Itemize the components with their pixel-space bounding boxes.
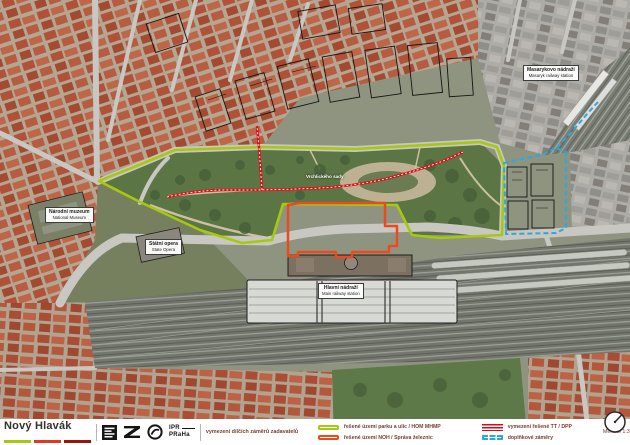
title-bar-darkred (64, 440, 91, 443)
title-bar-red (34, 440, 61, 443)
legend-item-tram: vymezení řešené TT / DPP (482, 424, 603, 431)
legend-item-noh: řešené území NOH / Správa železnic (318, 435, 472, 441)
title-bar-green (4, 440, 31, 443)
sprava-zeleznic-logo (123, 425, 141, 439)
title-color-bars (4, 440, 91, 443)
north-compass-icon (603, 410, 627, 434)
footer-divider (96, 424, 97, 441)
plan-sheet: Národní muzeum National Museum Státní op… (0, 0, 630, 445)
legend: řešené území parku a ulic / HOM MHMP řeš… (318, 424, 603, 441)
ipr-praha-logo: IPR PRaHa (169, 425, 195, 439)
footer-bar: Nový Hlavák (0, 419, 630, 445)
legend-swatch-red-stripes (482, 424, 503, 431)
legend-item-supplementary: doplňkové záměry (482, 435, 603, 441)
ipr-logo-top-text: IPR (169, 425, 180, 432)
map-label-vrchlickeho-sady: Vrchlického sady (306, 174, 344, 179)
map-label-statni-opera: Státní opera State Opera (145, 239, 182, 255)
document-subtitle: vymezení dílčích záměrů zadavatelů (206, 429, 318, 435)
map-label-hlavni-nadrazi: Hlavní nádraží Main railway station (318, 283, 364, 299)
legend-item-park-streets: řešené území parku a ulic / HOM MHMP (318, 424, 472, 431)
ipr-logo-line (182, 428, 195, 429)
map-label-narodni-muzeum: Národní muzeum National Museum (45, 207, 94, 223)
ipr-logo-bottom-text: PRaHa (169, 432, 195, 439)
legend-swatch-blue-dashed (482, 435, 503, 440)
logo-strip: IPR PRaHa (102, 424, 195, 440)
map-label-masarykovo-nadrazi: Masarykovo nádraží Masaryk railway stati… (523, 65, 579, 81)
praha-logo (102, 425, 117, 440)
brand-block: Nový Hlavák (0, 421, 91, 443)
legend-swatch-green-outline (318, 425, 339, 430)
footer-divider (200, 424, 201, 441)
satellite-map: Národní muzeum National Museum Státní op… (0, 0, 630, 445)
dpp-logo (147, 424, 163, 440)
document-title: Nový Hlavák (4, 421, 91, 432)
legend-swatch-red-outline (318, 435, 339, 440)
